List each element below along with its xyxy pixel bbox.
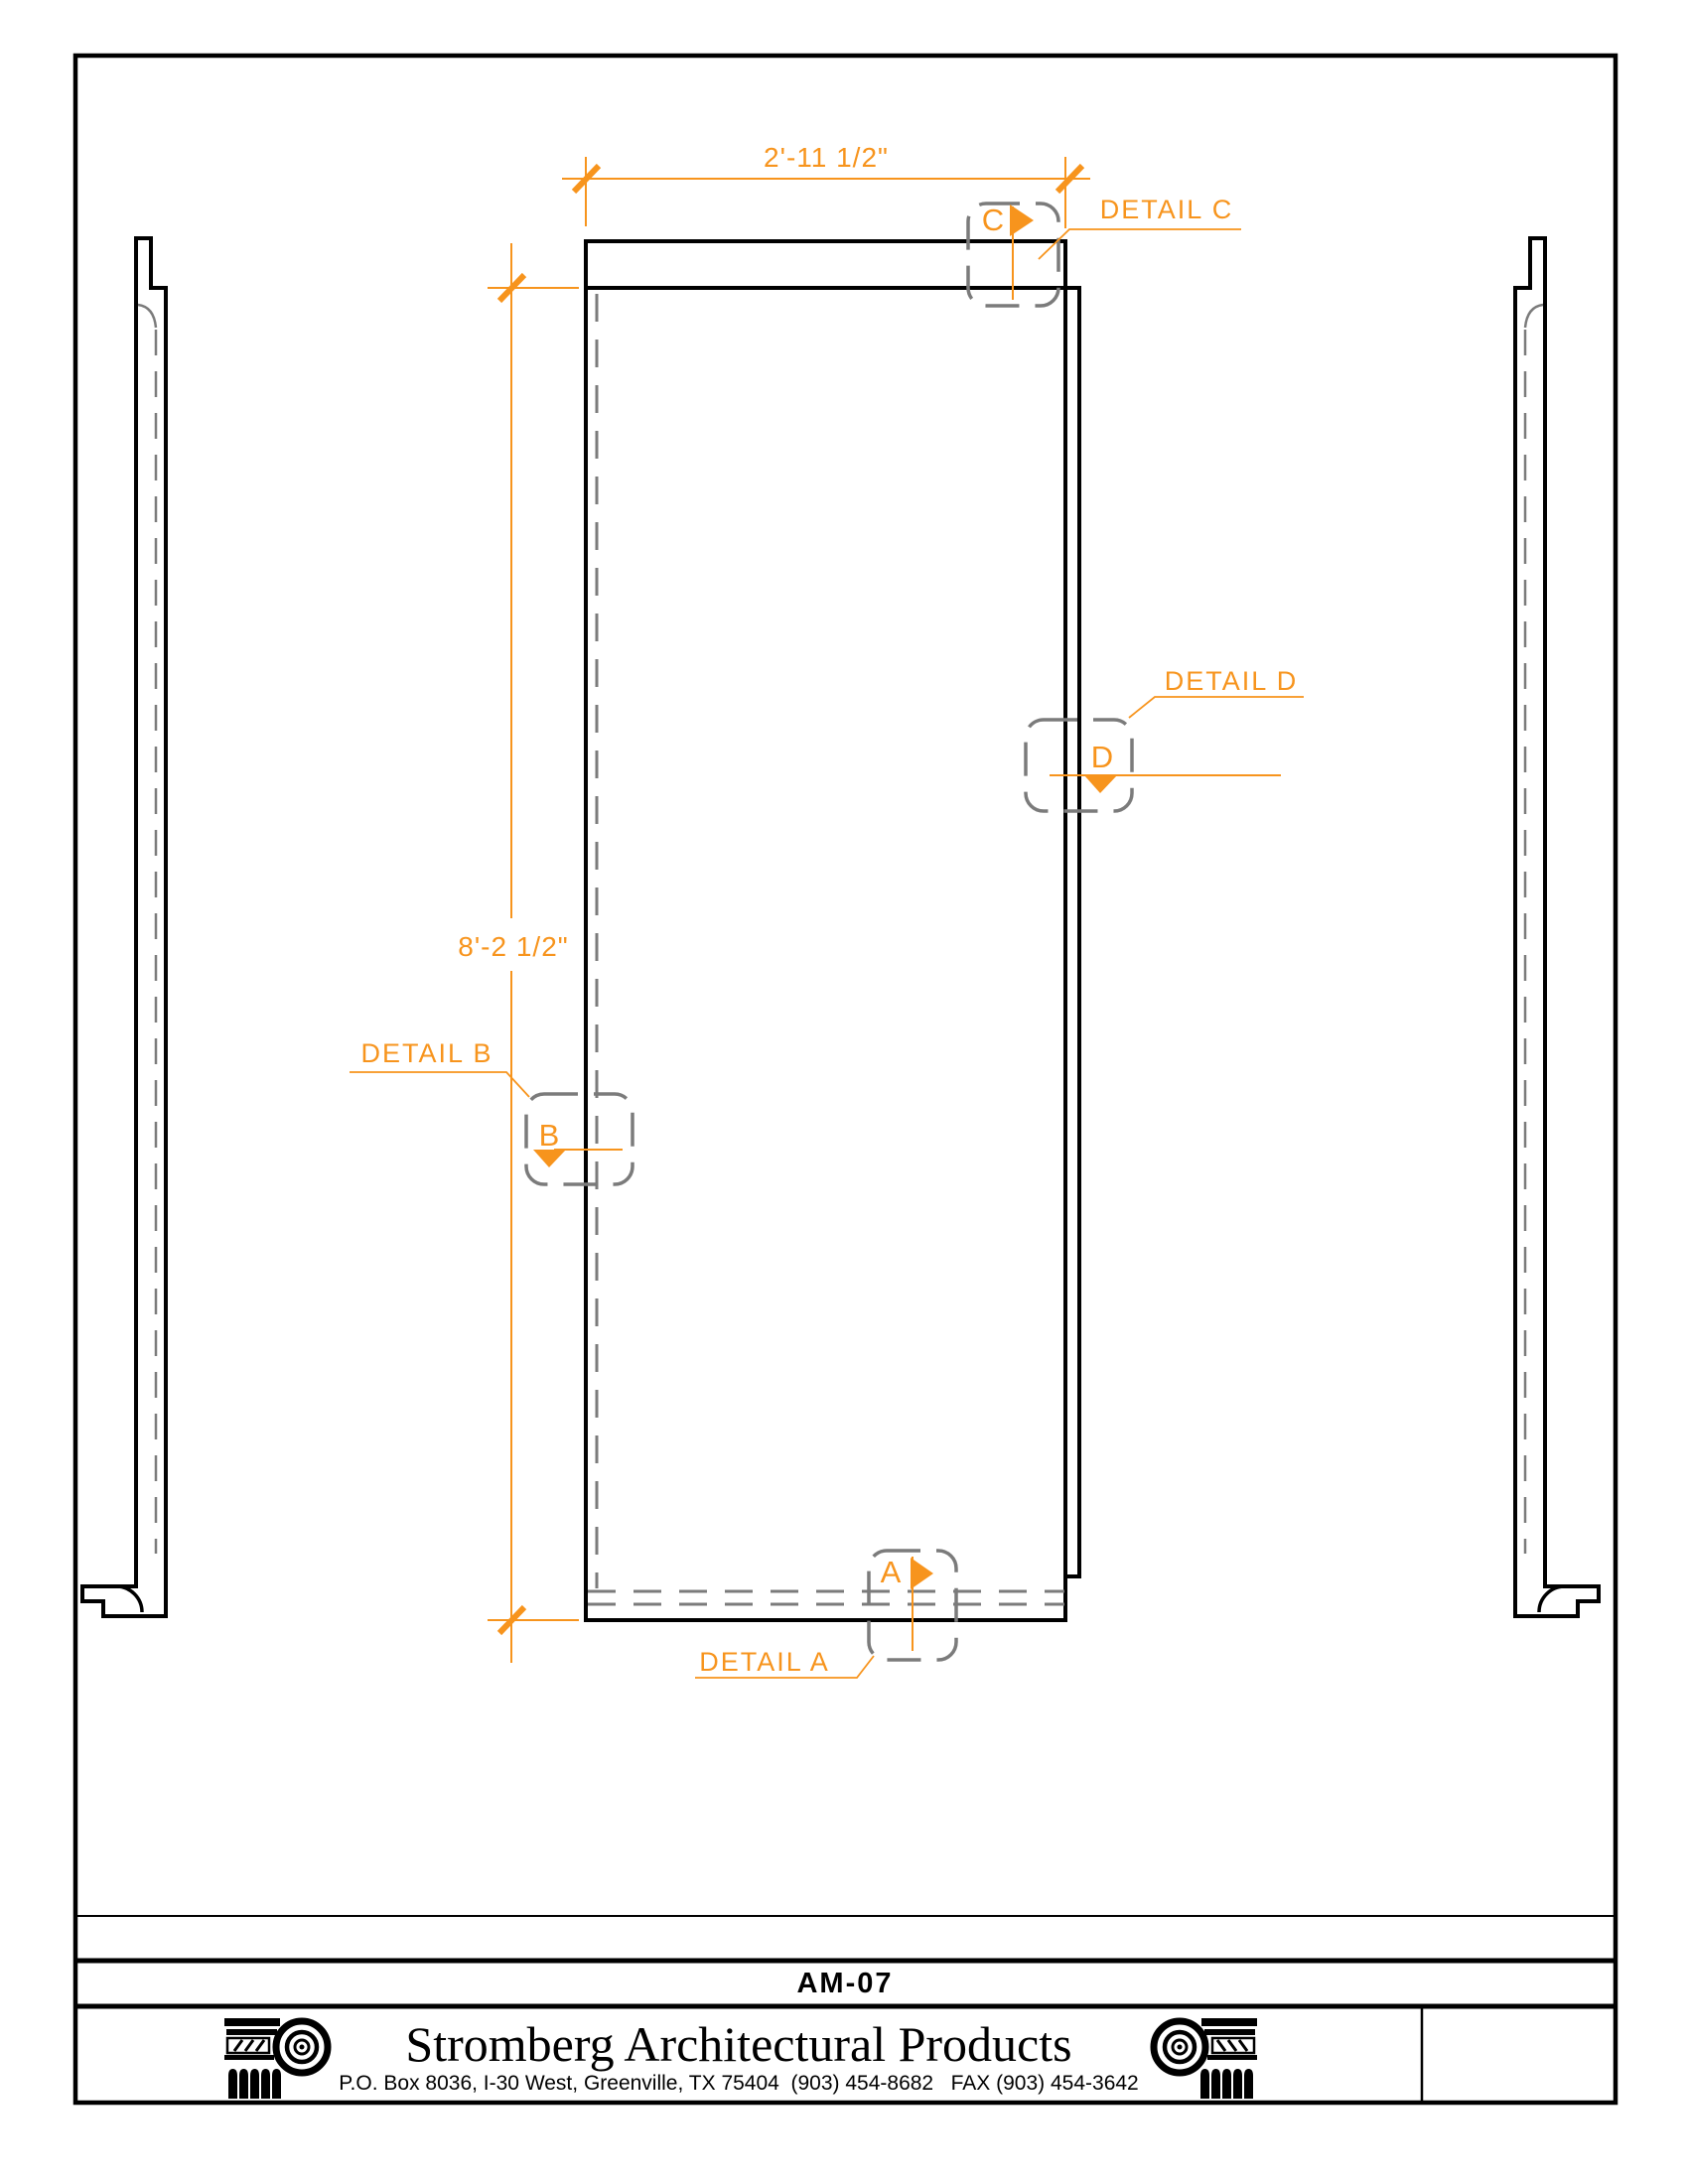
detail-a-marker-letter: A xyxy=(881,1555,902,1590)
detail-callout-boxes xyxy=(526,204,1132,1660)
detail-b-marker-letter: B xyxy=(539,1118,560,1154)
panel-right-return-line xyxy=(1065,288,1081,1577)
page-border xyxy=(75,56,1616,2103)
company-address: P.O. Box 8036, I-30 West, Greenville, TX… xyxy=(339,2072,1139,2096)
detail-d-arrow-icon xyxy=(1084,775,1117,793)
ionic-column-logo-right xyxy=(1150,2015,1257,2099)
right-profile-outline xyxy=(1515,238,1599,1616)
detail-c-leader xyxy=(1039,229,1241,259)
sheet-number: AM-07 xyxy=(796,1968,893,2000)
width-dimension-label: 2'-11 1/2" xyxy=(764,142,889,174)
company-name: Stromberg Architectural Products xyxy=(405,2015,1071,2073)
ionic-column-logo-left xyxy=(224,2015,332,2099)
drawing-linework xyxy=(0,0,1688,2184)
height-dimension-label: 8'-2 1/2" xyxy=(458,931,568,963)
detail-b-leader xyxy=(350,1072,529,1097)
right-profile-view xyxy=(1515,238,1599,1616)
detail-c-label: DETAIL C xyxy=(1100,195,1234,225)
left-profile-view xyxy=(82,238,166,1616)
detail-d-marker-letter: D xyxy=(1091,740,1113,775)
detail-section-lines xyxy=(554,206,1281,1651)
detail-d-label: DETAIL D xyxy=(1165,666,1299,697)
detail-b-label: DETAIL B xyxy=(360,1038,492,1069)
detail-a-arrow-icon xyxy=(911,1558,933,1589)
detail-c-marker-letter: C xyxy=(982,203,1004,238)
drawing-sheet: 2'-11 1/2" 8'-2 1/2" DETAIL C DETAIL D D… xyxy=(0,0,1688,2184)
left-profile-hidden-arc xyxy=(138,305,156,328)
left-profile-cove-line xyxy=(116,1586,142,1612)
detail-direction-arrows xyxy=(533,205,1117,1589)
detail-c-arrow-icon xyxy=(1010,205,1034,236)
detail-a-label: DETAIL A xyxy=(699,1647,830,1678)
right-profile-hidden-arc xyxy=(1525,305,1543,328)
right-profile-cove-line xyxy=(1539,1586,1565,1612)
panel-front-view xyxy=(586,241,1081,1620)
panel-outline xyxy=(586,241,1065,1620)
detail-d-leader xyxy=(1129,697,1304,718)
left-profile-outline xyxy=(82,238,166,1616)
